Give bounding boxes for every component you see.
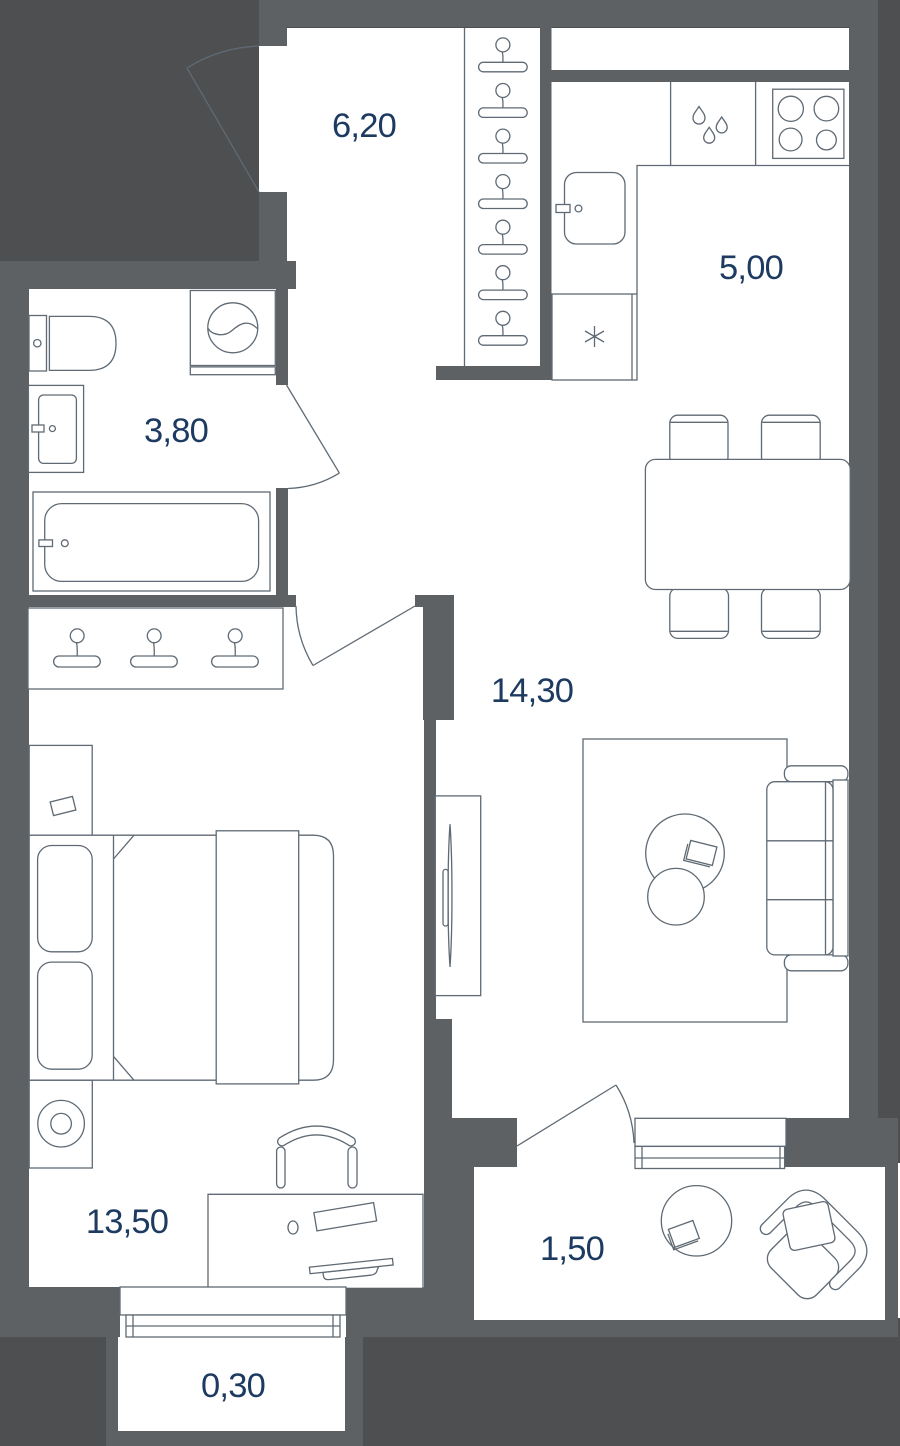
svg-text:1,50: 1,50 — [540, 1230, 604, 1268]
svg-text:13,50: 13,50 — [86, 1203, 168, 1241]
svg-text:14,30: 14,30 — [491, 672, 573, 710]
svg-text:5,00: 5,00 — [719, 249, 783, 287]
svg-text:6,20: 6,20 — [332, 107, 396, 145]
svg-text:3,80: 3,80 — [144, 412, 208, 450]
svg-text:0,30: 0,30 — [201, 1367, 265, 1405]
